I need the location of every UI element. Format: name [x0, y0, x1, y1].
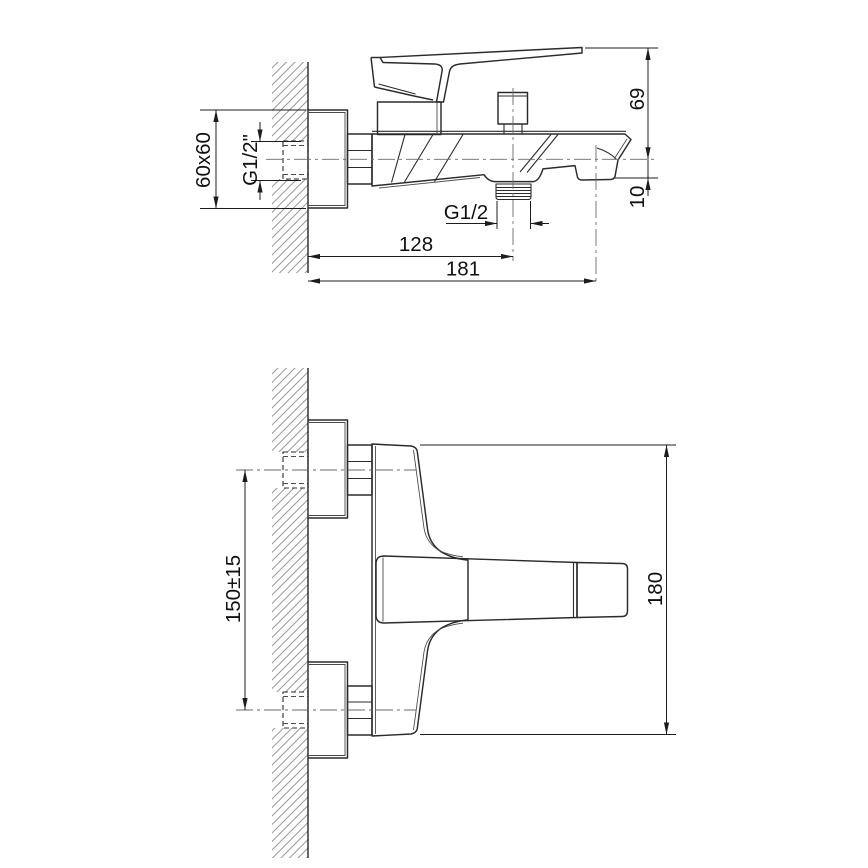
dim-10: 10 — [613, 159, 658, 208]
dimension-label-outlet-thread: G1/2 — [444, 201, 488, 224]
faucet-body-outline — [372, 134, 631, 186]
spout-thread-outlet — [496, 184, 531, 200]
side-view: 60x60 G1/2" 69 10 G1/2 — [192, 48, 658, 284]
dim-181: 181 — [308, 258, 596, 282]
wall-hatch — [272, 62, 308, 141]
dim-outlet-thread: G1/2 — [444, 201, 549, 229]
dimension-label-flange-size: 60x60 — [192, 132, 215, 188]
centerlines-side — [266, 88, 658, 283]
dim-69: 69 — [585, 48, 658, 159]
dimension-label-180: 180 — [644, 572, 667, 606]
cartridge-cap — [378, 102, 442, 135]
drawing-canvas: 60x60 G1/2" 69 10 G1/2 — [0, 0, 868, 868]
faucet-body-outline-plan — [372, 444, 468, 736]
mixer-body-side — [371, 48, 631, 200]
dimension-label-wall-thread: G1/2" — [239, 134, 262, 186]
wall-section-plan — [272, 368, 308, 858]
centerlines-plan — [236, 470, 416, 710]
hex-nut — [348, 686, 373, 735]
dim-overall-width: 180 — [420, 445, 676, 735]
mounting-flange-inner — [308, 423, 345, 516]
dimension-label-128: 128 — [399, 233, 433, 256]
wall-hatch — [272, 179, 308, 273]
dimension-label-10: 10 — [626, 186, 649, 209]
plan-view: 150±15 180 — [222, 368, 676, 858]
wall-hatch — [272, 488, 308, 692]
mixer-body-plan — [372, 444, 628, 736]
body-underside-inner — [379, 178, 480, 189]
wall-hatch — [272, 728, 308, 858]
wall-pipe-thread — [283, 141, 308, 179]
handle-end-cap-plan — [577, 563, 628, 618]
body-curve-inner — [414, 623, 464, 730]
wall-section-side — [272, 62, 308, 273]
body-curve-inner — [414, 450, 464, 557]
lever-handle-blade — [380, 48, 582, 103]
mounting-flange — [308, 420, 348, 518]
dim-128: 128 — [308, 233, 513, 257]
dimension-label-181: 181 — [446, 258, 480, 281]
dimension-label-150: 150±15 — [222, 555, 245, 623]
handle-bar-plan — [376, 556, 577, 623]
dim-connection-spacing: 150±15 — [222, 470, 245, 710]
spout-lip-curve — [597, 148, 617, 160]
dimension-label-69: 69 — [626, 88, 649, 111]
wall-hatch — [272, 368, 308, 452]
